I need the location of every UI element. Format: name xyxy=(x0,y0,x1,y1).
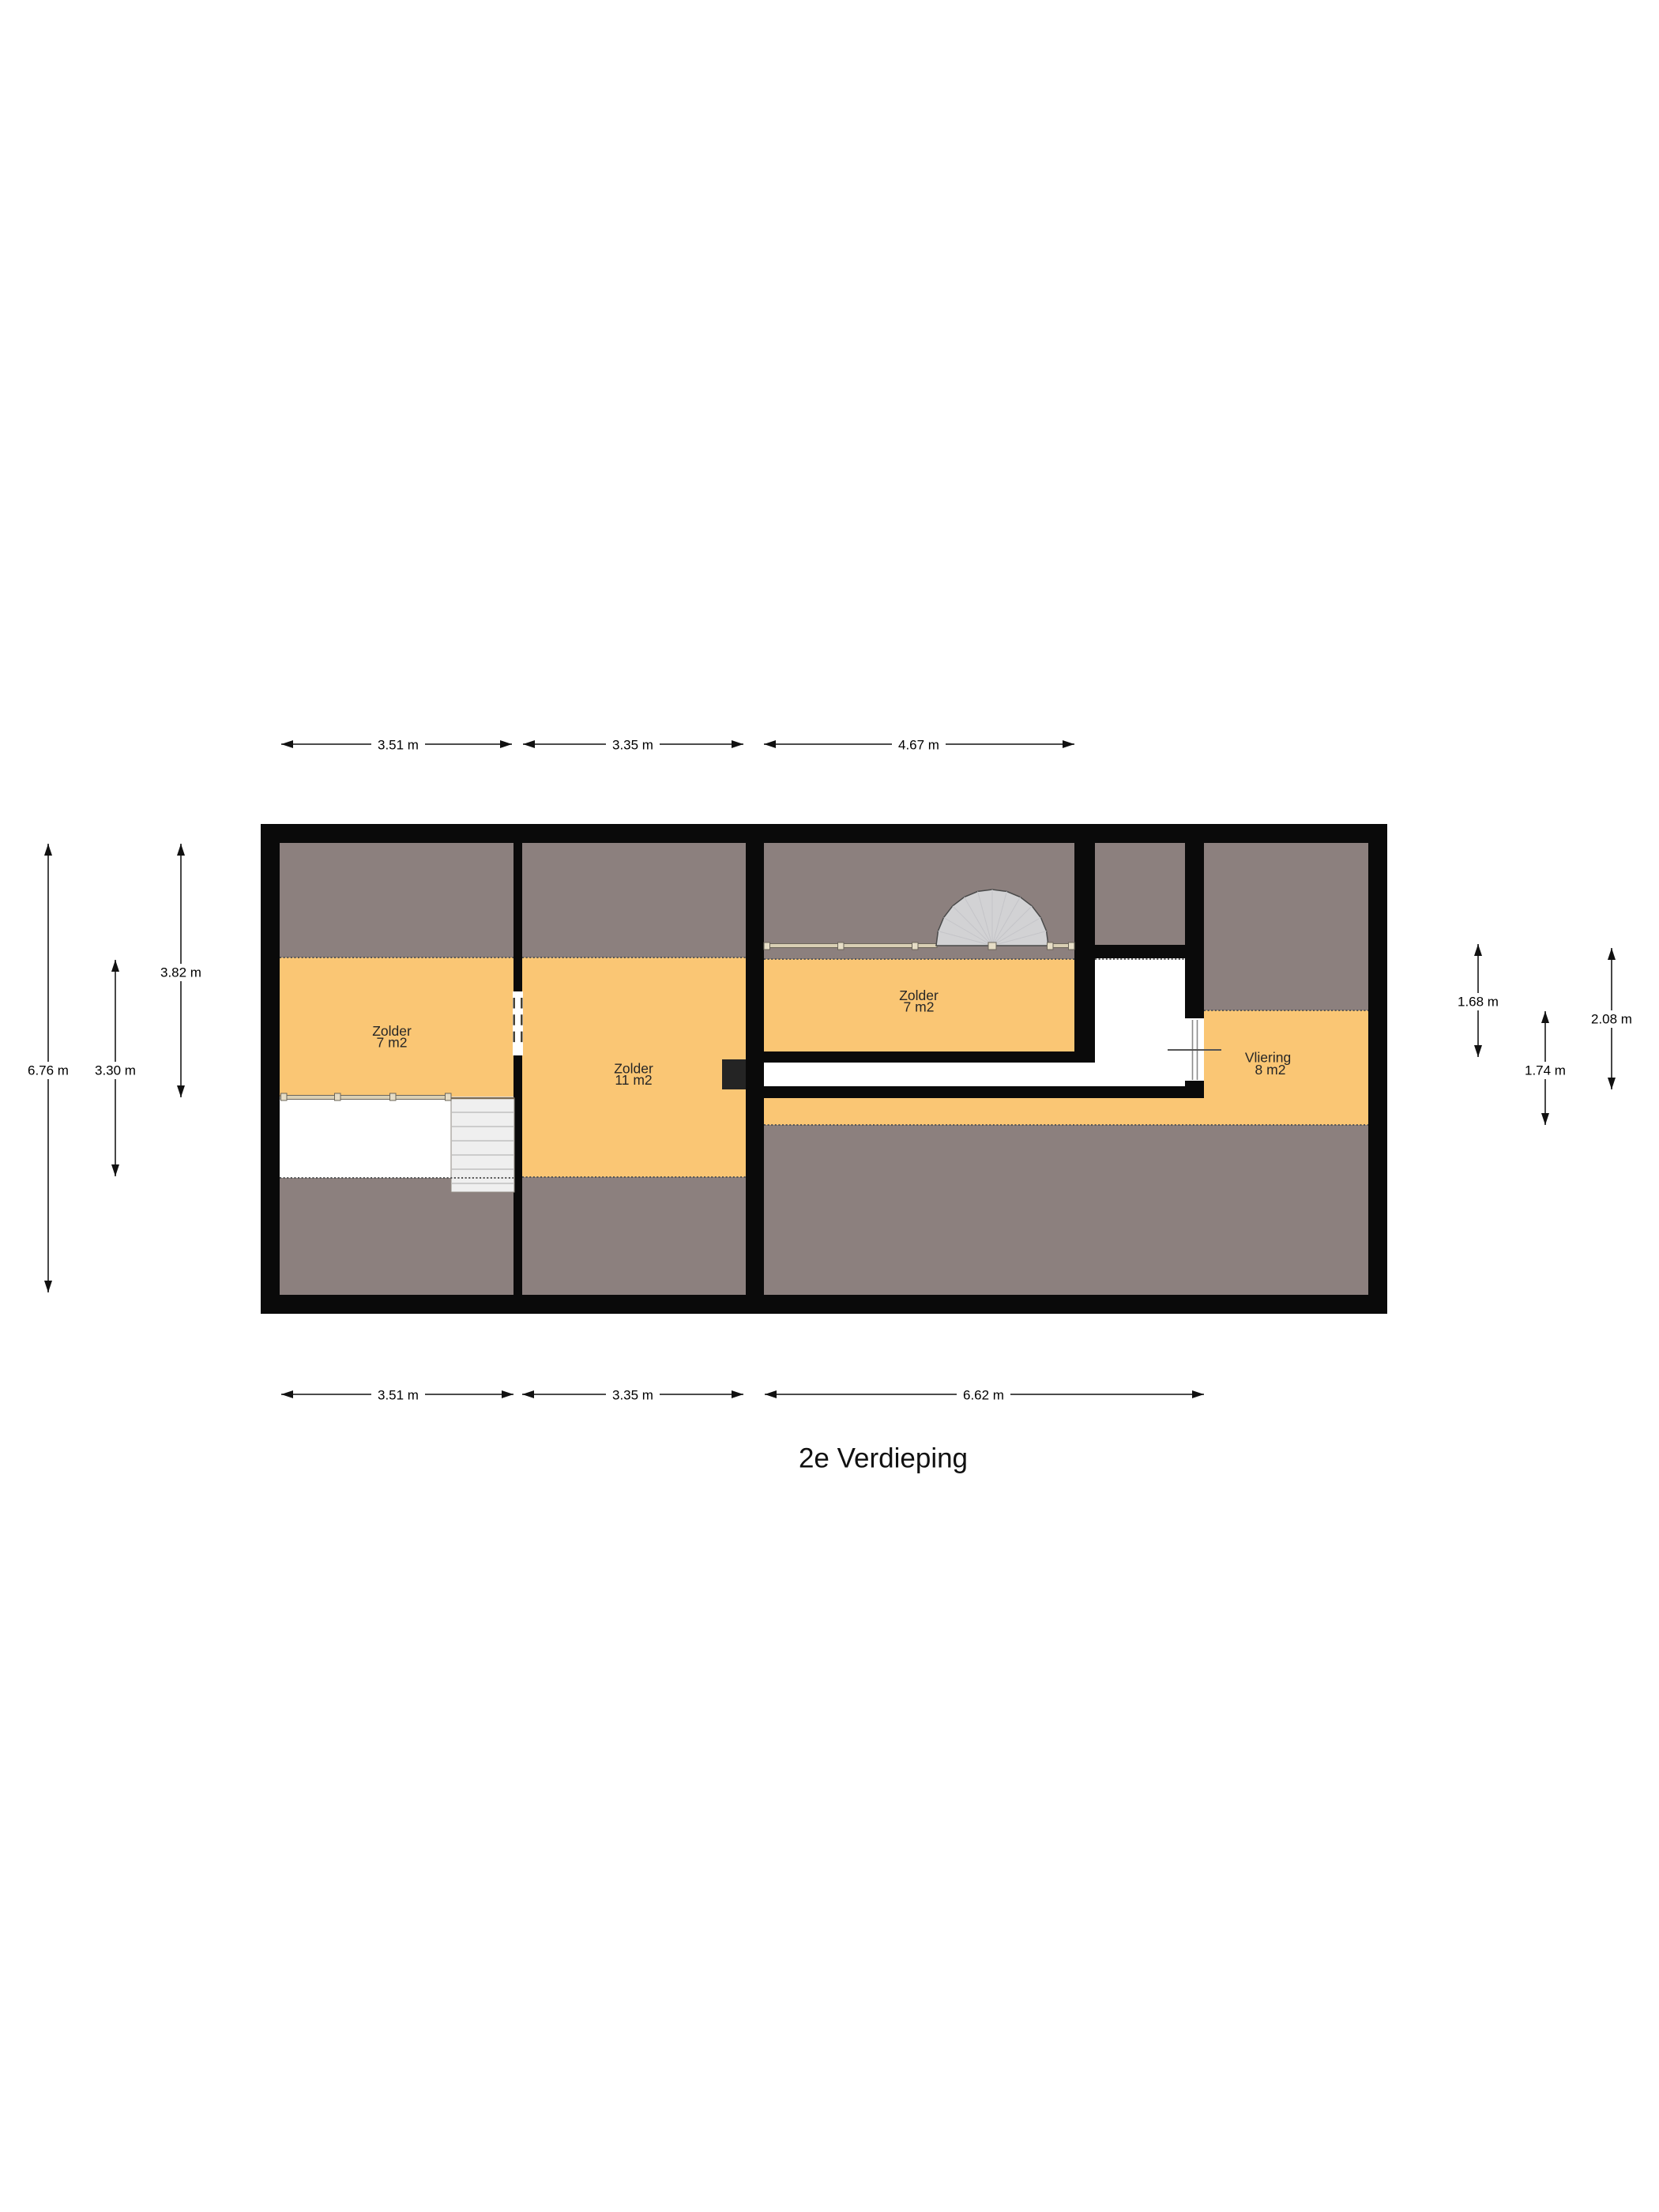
svg-text:2e Verdieping: 2e Verdieping xyxy=(799,1443,968,1474)
svg-text:6.76 m: 6.76 m xyxy=(28,1063,69,1078)
svg-text:1.68 m: 1.68 m xyxy=(1458,995,1499,1010)
svg-text:8 m2: 8 m2 xyxy=(1255,1062,1286,1078)
svg-text:7 m2: 7 m2 xyxy=(904,999,935,1015)
svg-text:3.35 m: 3.35 m xyxy=(612,738,653,753)
svg-text:3.35 m: 3.35 m xyxy=(612,1388,653,1403)
svg-text:7 m2: 7 m2 xyxy=(377,1035,408,1051)
svg-text:2.08 m: 2.08 m xyxy=(1591,1012,1632,1027)
svg-text:3.51 m: 3.51 m xyxy=(378,738,419,753)
svg-text:4.67 m: 4.67 m xyxy=(898,738,939,753)
svg-text:3.30 m: 3.30 m xyxy=(95,1063,136,1078)
svg-text:3.51 m: 3.51 m xyxy=(378,1388,419,1403)
svg-text:3.82 m: 3.82 m xyxy=(160,965,201,980)
svg-text:6.62 m: 6.62 m xyxy=(963,1388,1004,1403)
svg-text:11 m2: 11 m2 xyxy=(615,1072,652,1088)
svg-text:1.74 m: 1.74 m xyxy=(1525,1063,1566,1078)
